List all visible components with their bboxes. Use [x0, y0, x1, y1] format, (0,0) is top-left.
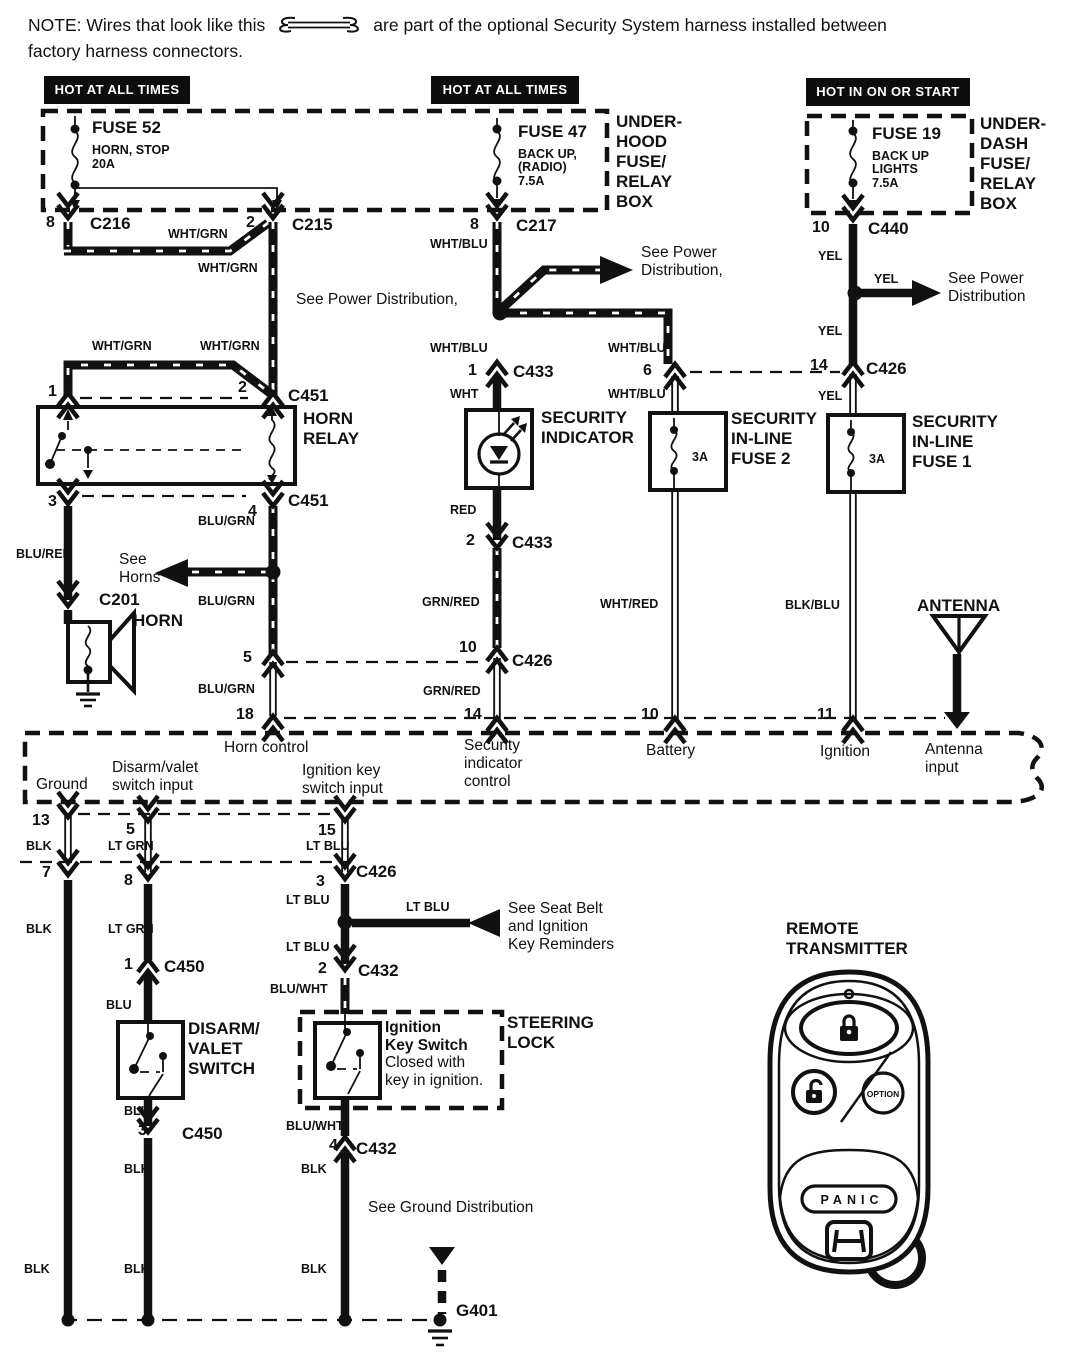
wire-blk-3: BLK — [124, 1104, 150, 1118]
wire-blu-grn-2: BLU/GRN — [198, 594, 255, 608]
wire-wht-grn-1: WHT/GRN — [168, 227, 228, 241]
connector-c217: C217 — [516, 216, 557, 236]
connector-c440: C440 — [868, 219, 909, 239]
horn-symbol — [68, 613, 134, 706]
horn-label: HORN — [133, 611, 183, 631]
ground-bus — [62, 1314, 453, 1346]
pin-14-mid: 14 — [464, 706, 482, 723]
note-suffix: are part of the optional Security System… — [373, 12, 887, 38]
header-hot-at-all-times-left: HOT AT ALL TIMES — [44, 76, 190, 104]
fuse19-desc1: BACK UP — [872, 149, 929, 163]
wire-blu: BLU — [106, 998, 132, 1012]
pin-2-c432: 2 — [318, 960, 327, 977]
wire-yel-4: YEL — [818, 389, 842, 403]
pin-3-c450: 3 — [138, 1122, 147, 1139]
wire-wht-grn-4: WHT/GRN — [200, 339, 260, 353]
connector-c451-top: C451 — [288, 386, 329, 406]
note-prefix: NOTE: Wires that look like this — [28, 12, 265, 38]
connector-c432-top: C432 — [358, 961, 399, 981]
steering-lock-label: STEERING LOCK — [507, 1013, 594, 1053]
pin-1-c450: 1 — [124, 956, 133, 973]
connector-c433-bottom: C433 — [512, 533, 553, 553]
ref-see-horns: See Horns — [119, 551, 160, 587]
underdash-box-label: UNDER- DASH FUSE/ RELAY BOX — [980, 114, 1046, 214]
connector-c426-mid: C426 — [512, 651, 553, 671]
pin-3-low: 3 — [316, 873, 325, 890]
wire-lt-grn-2: LT GRN — [108, 922, 154, 936]
ignition-key-switch-note: Closed with key in ignition. — [385, 1054, 483, 1090]
wire-wht-red: WHT/RED — [600, 597, 658, 611]
wire-blk-1: BLK — [26, 839, 52, 853]
fuse19-desc2: LIGHTS — [872, 162, 918, 176]
wire-yel-1: YEL — [818, 249, 842, 263]
remote-transmitter: OPTION PANIC — [770, 972, 928, 1285]
wire-yel-3: YEL — [818, 324, 842, 338]
security-indicator-label: SECURITY INDICATOR — [541, 408, 634, 448]
connector-c426-low: C426 — [356, 862, 397, 882]
pin-1-c433: 1 — [468, 362, 477, 379]
module-disarm-valet-input: Disarm/valet switch input — [112, 759, 198, 795]
fuse1-amp: 3A — [869, 452, 885, 466]
antenna-label: ANTENNA — [917, 596, 1000, 616]
note-text: NOTE: Wires that look like this are part… — [28, 12, 1068, 64]
ground-g401-label: G401 — [456, 1301, 498, 1321]
wire-blk-blu: BLK/BLU — [785, 598, 840, 612]
connector-c201: C201 — [99, 590, 140, 610]
wire-blu-grn-1: BLU/GRN — [198, 514, 255, 528]
module-horn-control: Horn control — [224, 739, 308, 757]
pin-14-c426-right: 14 — [810, 357, 828, 374]
pin-5-bottom: 5 — [126, 821, 135, 838]
wire-blk-8: BLK — [301, 1262, 327, 1276]
wire-blk-5: BLK — [301, 1162, 327, 1176]
ignition-key-switch-title: Ignition Key Switch — [385, 1019, 468, 1055]
wire-wht-grn-2: WHT/GRN — [198, 261, 258, 275]
ignition-key-switch — [315, 1014, 380, 1098]
fuse47-name: FUSE 47 — [518, 122, 587, 142]
fuse47-amp: 7.5A — [518, 174, 544, 188]
connector-c450-bottom: C450 — [182, 1124, 223, 1144]
optional-harness-wire-icon — [271, 14, 367, 36]
wire-wht-blu-1: WHT/BLU — [430, 237, 488, 251]
security-inline-fuse2 — [650, 413, 726, 490]
connector-c426-right: C426 — [866, 359, 907, 379]
pin-10-battery: 10 — [641, 706, 659, 723]
wire-blu-wht-2: BLU/WHT — [286, 1119, 344, 1133]
wire-blu-red: BLU/RED — [16, 547, 72, 561]
wire-blu-wht-1: BLU/WHT — [270, 982, 328, 996]
module-security-indicator-control: Security indicator control — [464, 737, 523, 791]
wire-wht-blu-2: WHT/BLU — [430, 341, 488, 355]
module-battery: Battery — [646, 742, 695, 760]
pin-11: 11 — [817, 706, 834, 723]
pin-13: 13 — [32, 812, 50, 829]
ref-power-distribution-right: See Power Distribution — [948, 270, 1026, 306]
option-button-label: OPTION — [867, 1089, 900, 1099]
fuse52-desc: HORN, STOP — [92, 143, 170, 157]
underhood-box-label: UNDER- HOOD FUSE/ RELAY BOX — [616, 112, 682, 212]
fuse52-amp: 20A — [92, 157, 115, 171]
module-antenna-input: Antenna input — [925, 741, 983, 777]
wire-red: RED — [450, 503, 476, 517]
wire-lt-grn-1: LT GRN — [108, 839, 154, 853]
module-ignition-key-input: Ignition key switch input — [302, 762, 383, 798]
panic-button-label: PANIC — [821, 1193, 884, 1207]
relay-pin-1: 1 — [48, 383, 57, 400]
pin-10-c426-mid: 10 — [459, 639, 477, 656]
connector-c432-bottom: C432 — [356, 1139, 397, 1159]
antenna-symbol — [933, 616, 985, 654]
connector-c216: C216 — [90, 214, 131, 234]
pin-7: 7 — [42, 864, 51, 881]
security-inline-fuse1 — [828, 415, 904, 492]
wire-wht-grn-3: WHT/GRN — [92, 339, 152, 353]
disarm-valet-switch — [118, 1022, 183, 1098]
connector-c451-bottom: C451 — [288, 491, 329, 511]
wire-wht: WHT — [450, 387, 478, 401]
connector-c433-top: C433 — [513, 362, 554, 382]
horn-relay-label: HORN RELAY — [303, 409, 359, 449]
relay-pin-3: 3 — [48, 493, 57, 510]
connector-c450-top: C450 — [164, 957, 205, 977]
wire-yel-2: YEL — [874, 272, 898, 286]
wire-grn-red-1: GRN/RED — [422, 595, 480, 609]
fuse47-element — [492, 118, 502, 209]
wire-blk-4: BLK — [124, 1162, 150, 1176]
fuse19-amp: 7.5A — [872, 176, 898, 190]
relay-pin-2: 2 — [238, 379, 247, 396]
pin-6: 6 — [643, 362, 652, 379]
pin-2-c433: 2 — [466, 532, 475, 549]
wire-lt-blu-3: LT BLU — [406, 900, 450, 914]
wire-blu-grn-3: BLU/GRN — [198, 682, 255, 696]
wire-blk-2: BLK — [26, 922, 52, 936]
pin-18: 18 — [236, 706, 254, 723]
pin-2-c215: 2 — [246, 214, 255, 231]
wire-lt-blu-4: LT BLU — [286, 940, 330, 954]
pin-10-c440: 10 — [812, 219, 830, 236]
pin-8-c217: 8 — [470, 216, 479, 233]
module-ignition: Ignition — [820, 743, 870, 761]
pin-4-c432: 4 — [329, 1137, 338, 1154]
wire-wht-blu-3: WHT/BLU — [608, 341, 666, 355]
note-line2: factory harness connectors. — [28, 38, 1068, 64]
connector-c215: C215 — [292, 215, 333, 235]
fuse19-name: FUSE 19 — [872, 124, 941, 144]
module-ground: Ground — [36, 776, 88, 794]
pin-5-left: 5 — [243, 649, 252, 666]
ref-power-distribution-mid: See Power Distribution, — [641, 244, 723, 280]
fuse2-amp: 3A — [692, 450, 708, 464]
wire-wht-blu-4: WHT/BLU — [608, 387, 666, 401]
pin-8-c216: 8 — [46, 214, 55, 231]
ref-seat-belt: See Seat Belt and Ignition Key Reminders — [508, 900, 614, 954]
disarm-valet-switch-label: DISARM/ VALET SWITCH — [188, 1019, 260, 1079]
remote-transmitter-title: REMOTE TRANSMITTER — [786, 919, 908, 959]
ref-power-distribution-left: See Power Distribution, — [296, 291, 458, 309]
inline-fuse1-label: SECURITY IN-LINE FUSE 1 — [912, 412, 998, 472]
fuse47-desc2: (RADIO) — [518, 160, 567, 174]
wiring-diagram: OPTION PANIC NOTE: Wires that look like … — [0, 0, 1083, 1356]
fuse52-name: FUSE 52 — [92, 118, 161, 138]
wire-lt-blu-2: LT BLU — [286, 893, 330, 907]
fuse19-element — [848, 120, 858, 210]
pin-15: 15 — [318, 822, 336, 839]
pin-8-low: 8 — [124, 872, 133, 889]
wire-blk-6: BLK — [24, 1262, 50, 1276]
wire-grn-red-2: GRN/RED — [423, 684, 481, 698]
junction-dots — [266, 286, 863, 930]
ref-ground-distribution: See Ground Distribution — [368, 1199, 533, 1217]
wire-blk-7: BLK — [124, 1262, 150, 1276]
wire-lt-blu-1: LT BLU — [306, 839, 350, 853]
fuse47-desc1: BACK UP, — [518, 147, 577, 161]
inline-fuse2-label: SECURITY IN-LINE FUSE 2 — [731, 409, 817, 469]
header-hot-in-on-or-start: HOT IN ON OR START — [806, 78, 970, 106]
connector-symbols — [58, 193, 863, 1162]
header-hot-at-all-times-midd: HOT AT ALL TIMES — [431, 76, 579, 104]
security-indicator — [466, 410, 532, 488]
diagram-graphics: OPTION PANIC — [0, 0, 1083, 1356]
